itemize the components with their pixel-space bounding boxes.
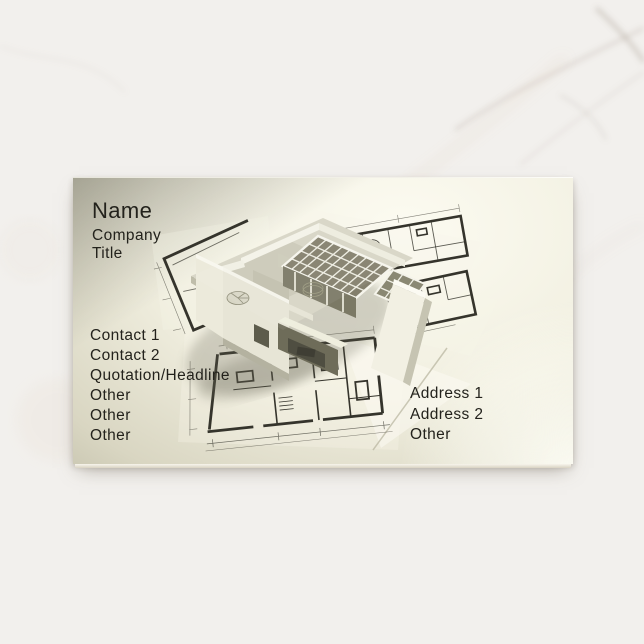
contact-line-1: Contact 1 — [90, 326, 230, 346]
other-line-1: Other — [90, 386, 230, 406]
title-text: Title — [92, 245, 123, 263]
company-text: Company — [92, 227, 161, 245]
address-line-1: Address 1 — [410, 384, 483, 405]
other-line-2: Other — [90, 406, 230, 426]
contact-line-2: Contact 2 — [90, 346, 230, 366]
business-card: Name Company Title Contact 1 Contact 2 Q… — [73, 177, 573, 464]
other-line-3: Other — [90, 426, 230, 446]
address-line-2: Address 2 — [410, 405, 483, 426]
address-line-3: Other — [410, 425, 483, 446]
quotation-headline-line: Quotation/Headline — [90, 366, 230, 386]
page: { "background": { "type": "white-marble-… — [0, 0, 644, 644]
name-text: Name — [92, 198, 152, 224]
contact-block: Contact 1 Contact 2 Quotation/Headline O… — [90, 326, 230, 445]
address-block: Address 1 Address 2 Other — [410, 384, 483, 446]
